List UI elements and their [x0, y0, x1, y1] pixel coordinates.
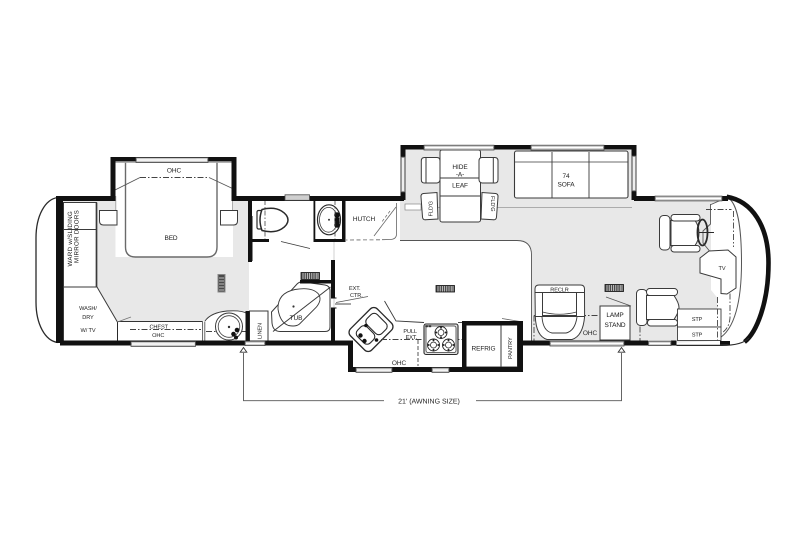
svg-text:LINEN: LINEN — [258, 323, 264, 339]
svg-text:74: 74 — [562, 173, 570, 180]
svg-text:CHEST: CHEST — [149, 324, 168, 330]
svg-text:OHC: OHC — [392, 360, 407, 367]
svg-text:OHC: OHC — [583, 330, 598, 337]
svg-text:EXT.: EXT. — [406, 335, 418, 341]
svg-text:LAMP: LAMP — [606, 312, 623, 319]
svg-text:PANTRY: PANTRY — [508, 337, 514, 359]
svg-text:-A-: -A- — [456, 172, 464, 179]
svg-text:21' (AWNING SIZE): 21' (AWNING SIZE) — [398, 398, 460, 406]
svg-text:LEAF: LEAF — [452, 183, 468, 190]
svg-text:HUTCH: HUTCH — [353, 216, 376, 223]
svg-text:STP: STP — [692, 333, 703, 339]
svg-text:FLD'G: FLD'G — [489, 196, 495, 212]
svg-text:TUB: TUB — [290, 315, 303, 322]
svg-text:OHC: OHC — [167, 168, 182, 175]
svg-text:SOFA: SOFA — [558, 182, 576, 189]
svg-text:TV: TV — [719, 266, 726, 272]
svg-text:MIRROR DOORS: MIRROR DOORS — [74, 210, 81, 263]
svg-text:EXT.: EXT. — [349, 286, 361, 292]
svg-text:BED: BED — [164, 235, 177, 242]
svg-text:FLD'G: FLD'G — [429, 201, 435, 217]
svg-text:W/ TV: W/ TV — [81, 327, 96, 334]
svg-text:RECLR: RECLR — [550, 288, 569, 294]
svg-text:STP: STP — [692, 317, 703, 323]
svg-text:DRY: DRY — [82, 315, 94, 321]
svg-text:WASH/: WASH/ — [79, 305, 97, 312]
svg-text:HIDE: HIDE — [452, 164, 468, 171]
svg-text:REFRIG: REFRIG — [472, 346, 496, 353]
svg-text:CTR.: CTR. — [350, 293, 363, 299]
svg-text:STAND: STAND — [604, 322, 625, 329]
svg-text:OHC: OHC — [152, 333, 164, 339]
